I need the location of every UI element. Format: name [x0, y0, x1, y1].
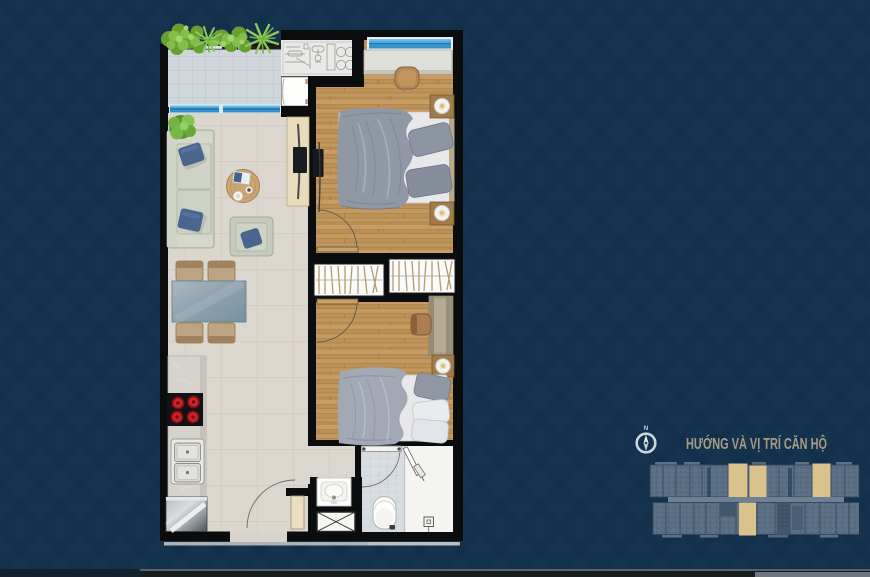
- svg-text:HƯỚNG VÀ VỊ TRÍ CĂN HỘ: HƯỚNG VÀ VỊ TRÍ CĂN HỘ: [686, 434, 827, 453]
- svg-text:N: N: [644, 425, 649, 432]
